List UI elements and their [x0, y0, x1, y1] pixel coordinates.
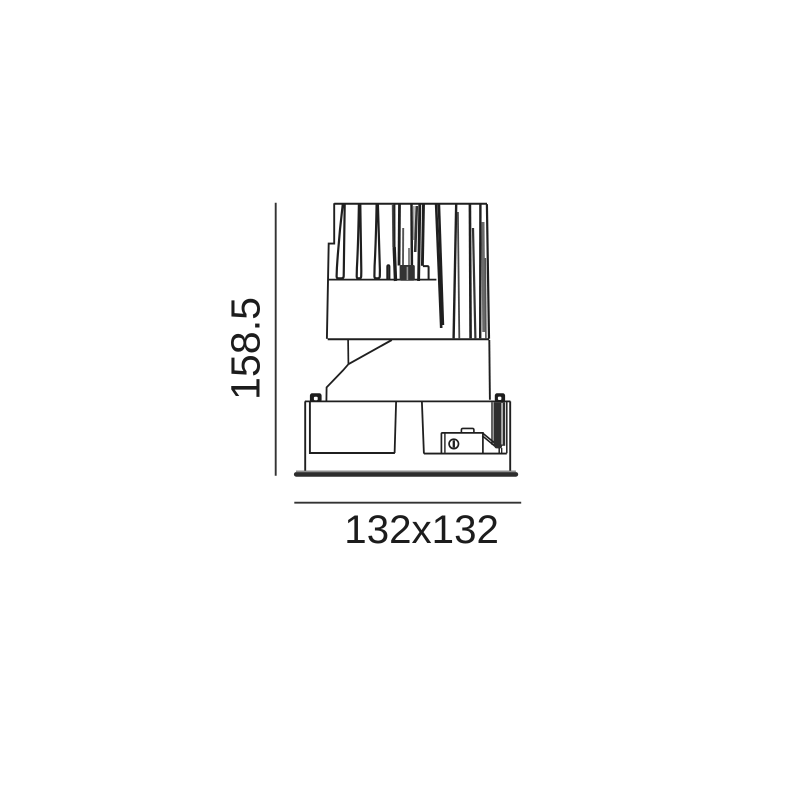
- svg-text:132x132: 132x132: [344, 507, 499, 552]
- svg-text:158.5: 158.5: [223, 297, 269, 400]
